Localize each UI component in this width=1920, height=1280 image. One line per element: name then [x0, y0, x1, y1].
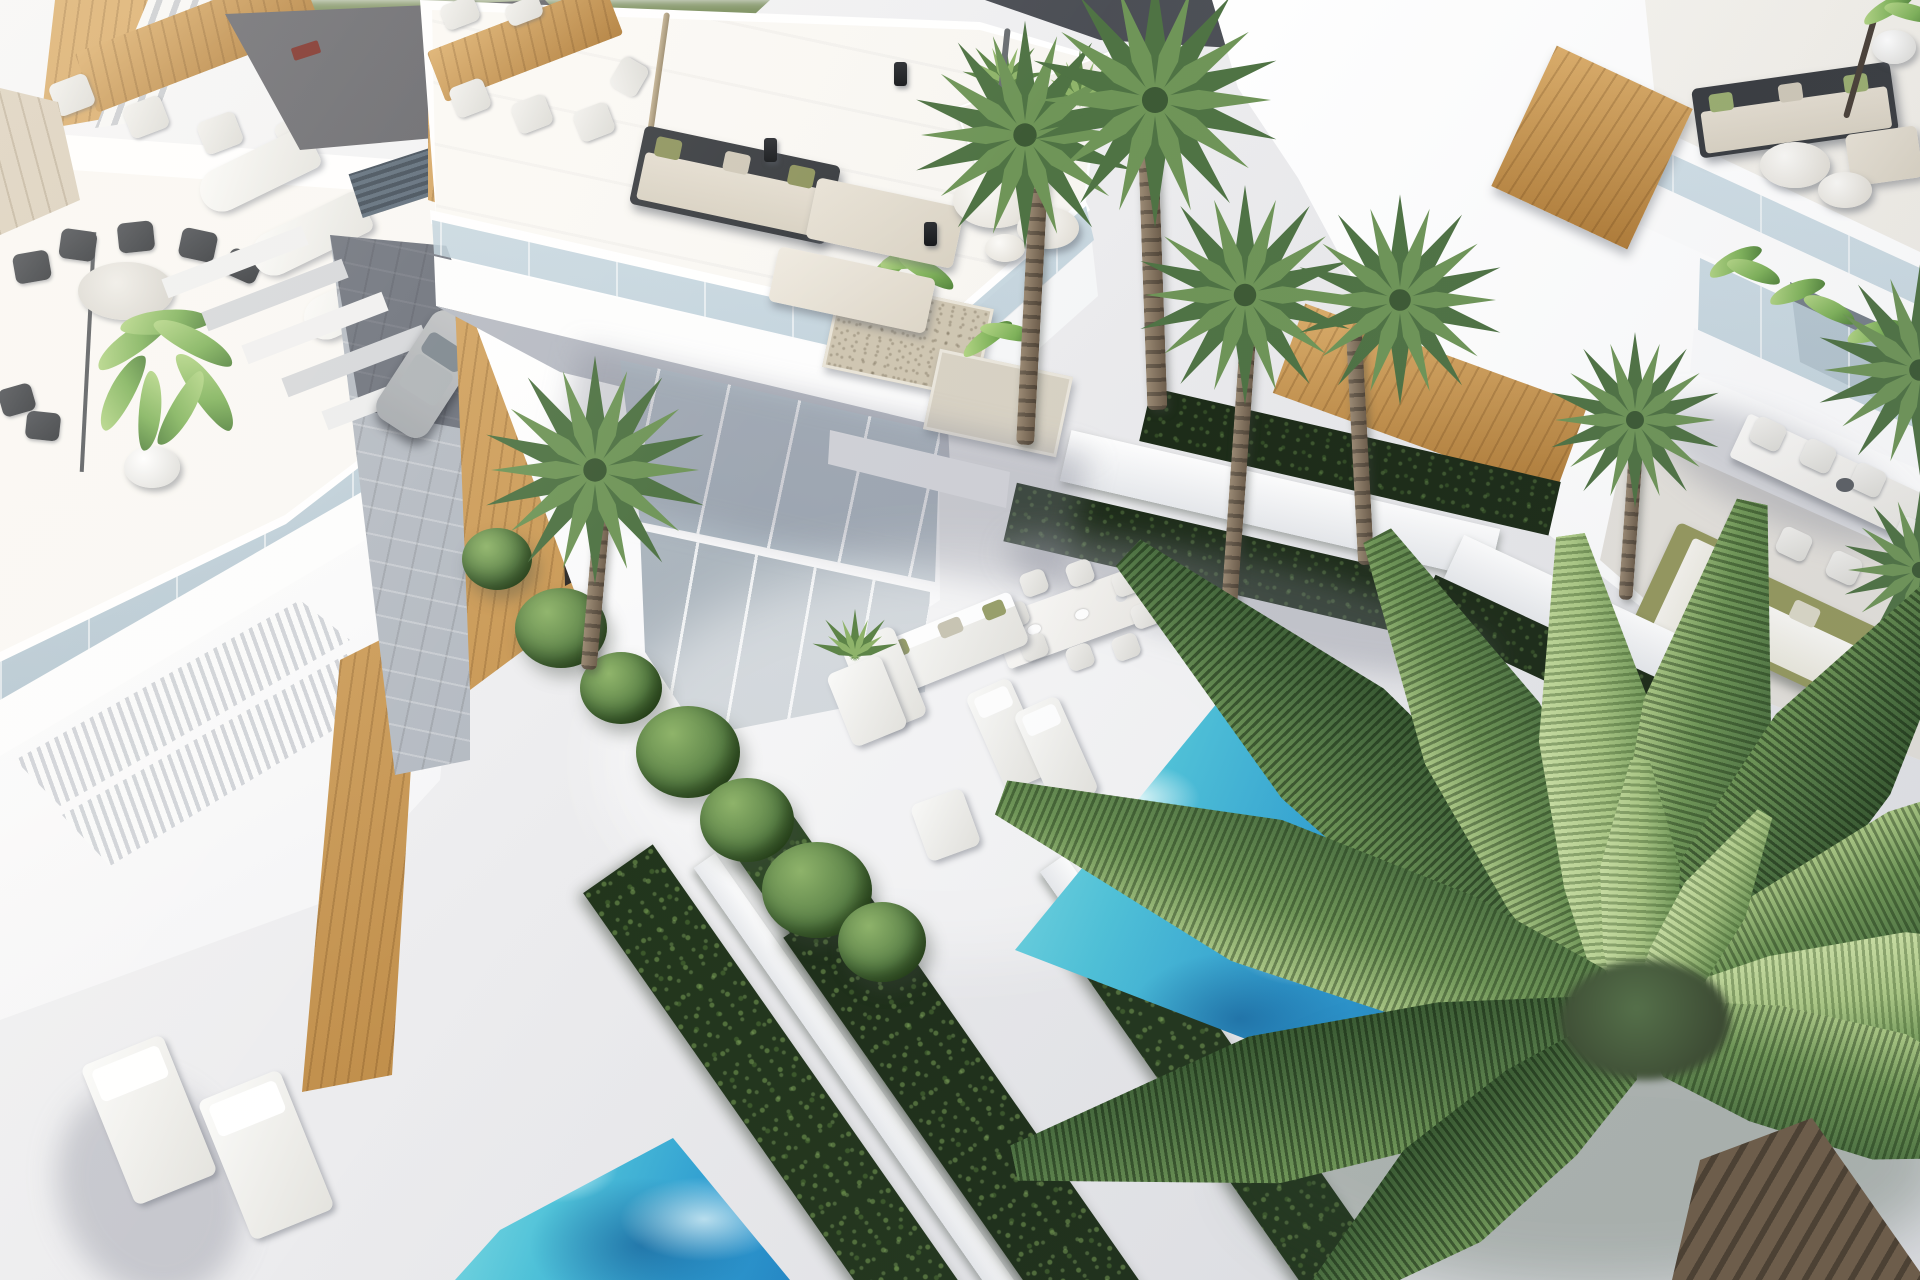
aerial-villa-render: [0, 0, 1920, 1280]
palm-crown-core: [1560, 960, 1730, 1080]
